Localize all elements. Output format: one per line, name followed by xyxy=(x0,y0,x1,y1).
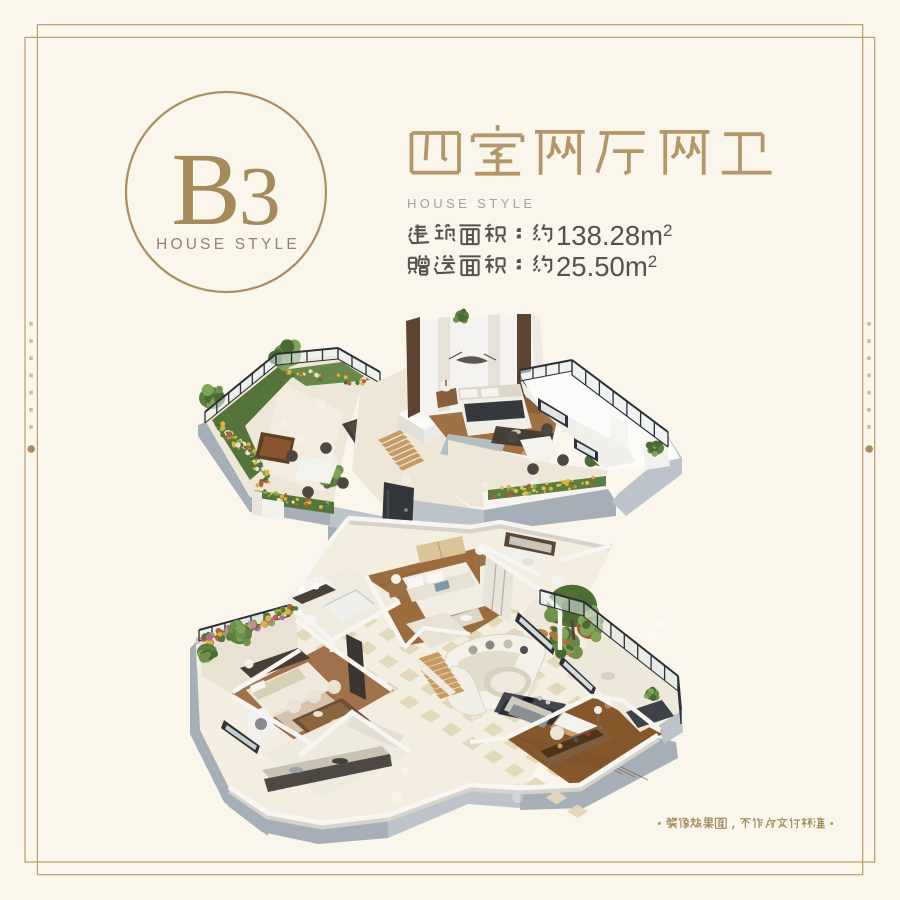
svg-text:B3: B3 xyxy=(171,132,280,247)
svg-text:HOUSE STYLE: HOUSE STYLE xyxy=(407,196,535,211)
svg-text:HOUSE STYLE: HOUSE STYLE xyxy=(156,236,300,253)
svg-text:25.50m2: 25.50m2 xyxy=(556,251,657,282)
svg-text:138.28m2: 138.28m2 xyxy=(556,220,673,251)
